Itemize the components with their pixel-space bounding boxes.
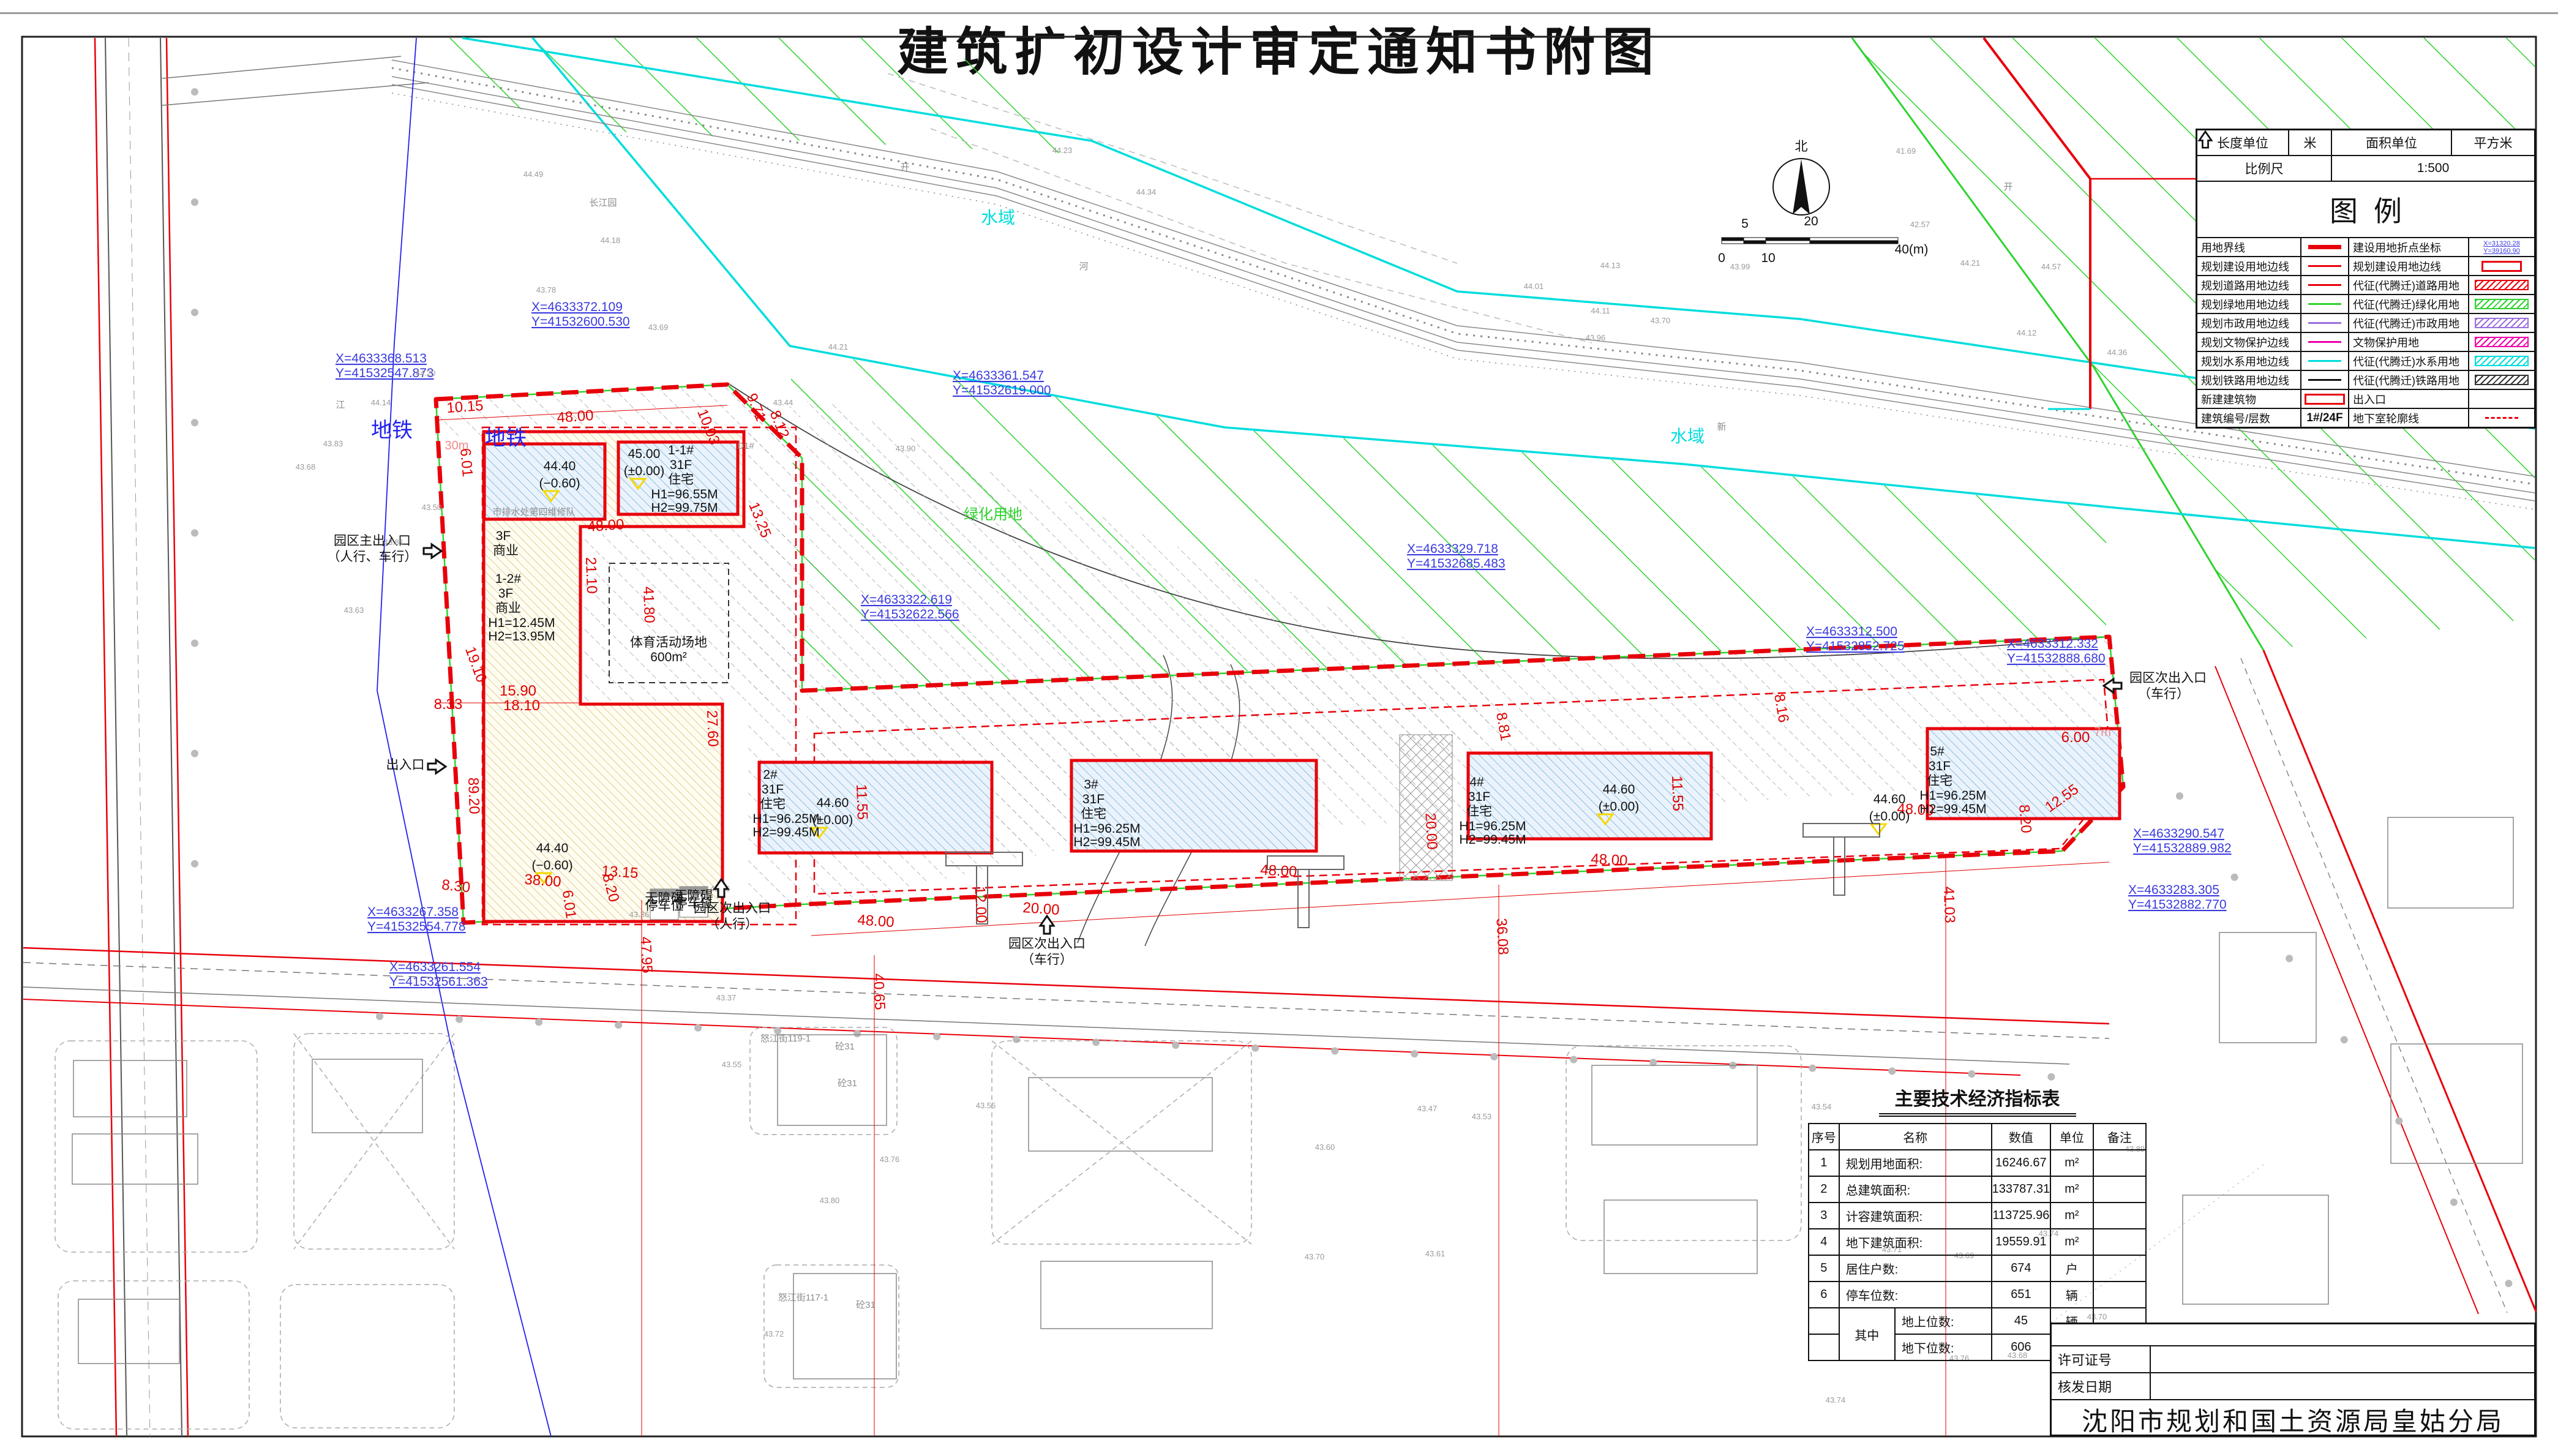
indicators-row: 6停车位数:651辆 [1809,1282,2146,1308]
hatch-green-icon [2475,299,2529,309]
new-building-icon [2305,394,2345,405]
legend-name: 新建建筑物 [2197,390,2301,408]
map-label: 48.00 [1260,861,1297,880]
legend-symbol [2469,257,2534,275]
legend-block: 长度单位 米 面积单位 平方米 比例尺 1:500 图例 用地界线建设用地折点坐… [2196,129,2536,429]
map-label: 10.15 [446,397,484,416]
legend-name: 规划文物保护边线 [2197,333,2301,351]
map-label: 3F [498,587,514,601]
map-label: Y=41532600.530 [531,315,630,329]
map-label: H1=96.55M [651,487,718,501]
legend-symbol [2301,390,2349,408]
map-label: 43.78 [536,285,557,295]
legend-symbol [2301,276,2349,294]
map-label: 89.20 [465,777,482,814]
map-label: 41.80 [640,586,658,623]
map-label: 44.13 [1600,261,1621,270]
legend-symbol [2469,295,2534,313]
map-label: H2=99.45M [752,825,819,839]
legend-symbol: X=31320.28Y=39160.90 [2469,238,2534,256]
legend-symbol [2301,352,2349,370]
issue-date-label: 核发日期 [2052,1373,2151,1399]
map-label: Y=41532619.000 [953,383,1051,397]
group-cell: 其中 [1839,1308,1895,1360]
permit-number-label: 许可证号 [2052,1346,2151,1372]
issue-date-value [2151,1373,2534,1399]
map-label: 长江园 [589,198,617,208]
scale-value: 1:500 [2332,156,2534,181]
map-label: 48.00 [857,912,895,931]
map-label: 43.90 [896,444,916,453]
map-label: X=4633312.332 [2007,637,2098,651]
map-label: 44.34 [1136,187,1157,197]
map-label: 河 [1079,261,1088,272]
map-label: 20.00 [1422,812,1440,850]
parking-ramp [1400,735,1452,880]
title-block: 许可证号 核发日期 沈阳市规划和国土资源局皇姑分局 [2050,1323,2536,1436]
legend-symbol: 1#/24F [2301,409,2349,427]
map-label: 45.00 [628,447,661,461]
map-label: X=4633267.358 [367,905,459,919]
map-label: 园区次出入口 [1008,937,1086,951]
map-label: 40.65 [869,973,888,1010]
map-label: 44.20 [416,369,436,378]
map-label: H2=99.75M [651,501,718,515]
hatch-red-icon [2475,280,2529,290]
hatch-black-icon [2475,375,2529,385]
map-label: 43.80 [820,1196,840,1205]
map-label: 44.60 [1873,792,1906,806]
map-label: 43.76 [880,1155,900,1164]
map-label: 44.23 [1052,146,1073,155]
entrance-arrow-icon [424,544,441,558]
map-label: 怒江街117-1 [778,1293,828,1303]
map-label: 2# [763,768,778,782]
legend-row: 规划铁路用地边线代征(代腾迁)铁路用地 [2197,371,2534,390]
area-unit-value: 平方米 [2452,130,2534,155]
map-label: 11.55 [853,784,871,820]
map-label: 5 [1741,217,1749,231]
map-label: 43.72 [764,1329,784,1338]
indicators-header-row: 序号名称数值单位备注 [1809,1124,2146,1150]
map-label: 42.57 [1910,220,1930,229]
legend-name: 文物保护用地 [2349,333,2469,351]
line-green-icon [2308,303,2341,305]
map-label: 48.00 [1591,850,1628,869]
map-label: 砼31 [856,1300,876,1310]
map-label: Y=41532685.483 [1407,557,1506,571]
legend-name: 规划道路用地边线 [2197,276,2301,294]
map-label: 44.14 [371,398,391,407]
legend-row: 新建建筑物出入口 [2197,390,2534,409]
map-label: 44.40 [536,841,569,855]
legend-name: 规划铁路用地边线 [2197,371,2301,389]
map-label: Y=41532882.770 [2128,898,2227,912]
map-label: 44.21 [1960,258,1981,268]
map-label: 1-2# [495,572,521,586]
indicators-row: 5居住户数:674户 [1809,1255,2146,1282]
indicators-row: 4地下建筑面积:19559.91m² [1809,1229,2146,1255]
legend-name: 代征(代腾迁)铁路用地 [2349,371,2469,389]
map-label: 43.83 [323,439,343,448]
line-purple-icon [2308,322,2341,324]
map-label: 43.99 [1730,262,1750,271]
map-label: 31F [1468,790,1490,804]
map-label: 20 [1804,214,1818,228]
map-label: H2=99.45M [1919,802,1986,816]
map-label: H2=13.95M [488,629,555,644]
map-label: 地铁 [371,419,413,442]
legend-row: 规划水系用地边线代征(代腾迁)水系用地 [2197,352,2534,371]
legend-symbol [2301,333,2349,351]
line-magenta-icon [2308,341,2341,343]
line-red-icon [2308,265,2341,267]
map-label: 43.96 [1586,333,1606,342]
map-label: 43.70 [1305,1252,1325,1261]
map-label: (−0.60) [539,476,580,490]
map-label: 44.21 [828,342,849,351]
indicators-row: 1规划用地面积:16246.67m² [1809,1150,2146,1176]
map-label: H2=99.45M [1073,835,1140,849]
map-label: 44.60 [1603,782,1635,797]
map-label: 开 [900,162,909,173]
map-label: 北 [1795,140,1808,154]
map-label: 40(m) [1895,242,1929,257]
map-label: 43.63 [344,606,364,615]
map-label: 水域 [981,208,1015,227]
legend-name: 建设用地折点坐标 [2349,238,2469,256]
map-label: H1=12.45M [488,616,555,630]
hatch-purple-icon [2475,318,2529,328]
units-row: 长度单位 米 面积单位 平方米 [2197,130,2534,156]
legend-name: 代征(代腾迁)绿化用地 [2349,295,2469,313]
map-label: 商业 [495,601,521,615]
legend-name: 代征(代腾迁)道路用地 [2349,276,2469,294]
legend-name: 规划水系用地边线 [2197,352,2301,370]
map-label: 8.33 [434,696,463,713]
map-label: X=4633361.547 [953,369,1044,383]
entrance-arrow-icon [428,760,446,773]
map-label: 商业 [493,544,519,558]
legend-name: 用地界线 [2197,238,2301,256]
map-label: Y=41532561.363 [389,975,488,989]
map-label: 38.00 [524,871,562,890]
city-block-outlines [55,1027,1801,1429]
map-label: H1=96.25M [1073,822,1140,836]
map-label: 43.44 [773,398,793,407]
map-label: (−0.60) [531,858,572,872]
map-label: （人行） [707,917,758,931]
map-label: 11.55 [1668,775,1686,811]
map-label: 1-1# [668,443,694,457]
legend-name: 规划建设用地边线 [2349,257,2469,275]
legend-symbol [2469,314,2534,332]
hatch-cyan-icon [2475,356,2529,366]
legend-symbol [2469,333,2534,351]
map-label: 3# [1084,778,1098,792]
legend-name: 出入口 [2349,390,2469,408]
map-label: 44.36 [2107,348,2128,357]
map-label: 园区次出入口 [2129,671,2207,685]
map-label: 水域 [1670,427,1705,446]
map-label: 出入口 [386,758,425,772]
map-label: 住宅 [1081,807,1106,821]
length-unit-value: 米 [2289,130,2332,155]
legend-name: 规划绿地用地边线 [2197,295,2301,313]
scale-row: 比例尺 1:500 [2197,156,2534,182]
map-label: Y=41532888.680 [2007,651,2106,666]
scale-bar [1722,238,1898,244]
line-red-icon [2308,284,2341,286]
legend-row: 规划建设用地边线规划建设用地边线 [2197,257,2534,276]
map-label: 市排水处第四维修队 [492,506,575,517]
map-label: 停车位 [675,896,713,910]
west-street [95,38,429,1436]
legend-symbol [2469,371,2534,389]
map-label: (±0.00) [1599,800,1639,814]
map-label: 44.18 [601,236,621,245]
map-label: X=4633322.619 [861,593,952,607]
map-label: 怒江街119-1 [760,1034,811,1044]
map-label: 4# [1469,775,1484,789]
map-label: 住宅 [760,797,786,811]
map-label: （车行） [2138,687,2189,701]
map-label: 砼31 [838,1078,857,1089]
legend-name: 建筑编号/层数 [2197,409,2301,427]
legend-name: 规划建设用地边线 [2197,257,2301,275]
map-label: 43.53 [1472,1112,1492,1121]
map-label: D1# [737,441,754,451]
map-label: 43.74 [1826,1395,1846,1405]
legend-symbol [2301,371,2349,389]
map-label: 3F [496,529,511,543]
map-label: (±0.00) [1869,809,1910,824]
legend-row: 规划绿地用地边线代征(代腾迁)绿化用地 [2197,295,2534,314]
legend-symbol [2301,238,2349,256]
map-label: 44.60 [817,796,849,810]
line-red-dash-icon [2485,417,2518,419]
vertex-coordinate-icon: X=31320.28Y=39160.90 [2483,240,2520,255]
map-label: 21.10 [582,557,600,594]
title-block-empty-row [2052,1324,2534,1346]
map-label: 36.08 [1493,918,1511,955]
line-cyan-icon [2308,360,2341,362]
legend-row: 规划道路用地边线代征(代腾迁)道路用地 [2197,276,2534,295]
legend-symbol [2469,409,2534,427]
map-label: 住宅 [1466,805,1492,819]
map-label: 43.55 [722,1060,742,1069]
map-label: 6.00 [2061,729,2090,746]
map-label: 44.11 [1591,306,1610,315]
new-building-icon [2481,261,2522,272]
legend-name: 地下室轮廓线 [2349,409,2469,427]
map-label: Y=41532889.982 [2133,841,2232,855]
map-label: 12.00 [971,886,989,923]
map-label: 43.61 [1425,1249,1446,1258]
map-label: 27.60 [703,710,721,747]
map-label: 48.00 [557,407,594,426]
map-label: 41.03 [1940,886,1958,923]
map-label: H2=99.45M [1459,833,1526,847]
map-label: Y=41532852.725 [1806,639,1905,653]
map-label: 5# [1930,745,1945,759]
map-label: 43.81 [384,538,404,547]
legend-symbol [2469,390,2534,408]
map-label: X=4633312.500 [1806,625,1897,639]
map-label: 10 [1761,251,1775,265]
line-black-icon [2308,379,2341,381]
map-label: 住宅 [1927,774,1952,788]
drawing-sheet: 建筑扩初设计审定通知书附图 [0,0,2558,1456]
map-label: 43.60 [1315,1143,1335,1152]
map-label: 44.12 [2017,328,2037,337]
indicators-row: 3计容建筑面积:113725.96m² [1809,1203,2146,1229]
map-label: 48.00 [587,516,625,535]
legend-symbol [2469,352,2534,370]
map-label: 开 [2003,182,2012,192]
map-label: H1=96.25M [1919,789,1986,803]
map-label: 43.70 [1651,316,1671,325]
legend-name: 规划市政用地边线 [2197,314,2301,332]
map-label: 31F [762,782,784,797]
indicators-title: 主要技术经济指标表 [1879,1080,2076,1117]
legend-symbol [2301,295,2349,313]
map-label: Y=41532554.778 [367,920,466,934]
map-label: X=4633368.513 [336,351,427,366]
scale-label: 比例尺 [2197,156,2332,181]
map-label: X=4633372.109 [531,300,623,314]
map-label: (±0.00) [624,464,664,478]
map-label: X=4633261.554 [389,960,481,974]
legend-row: 规划文物保护边线文物保护用地 [2197,333,2534,352]
legend-symbol [2301,314,2349,332]
indicators-row: 2总建筑面积:133787.31m² [1809,1176,2146,1203]
permit-number-value [2151,1346,2534,1372]
legend-row: 建筑编号/层数1#/24F地下室轮廓线 [2197,409,2534,427]
floor-count-example: 1#/24F [2306,411,2342,425]
indicators-block: 主要技术经济指标表 序号名称数值单位备注1规划用地面积:16246.67m²2总… [1808,1080,2147,1361]
map-label: 31F [1929,759,1951,773]
legend-symbol [2301,257,2349,275]
legend-row: 规划市政用地边线代征(代腾迁)市政用地 [2197,314,2534,333]
map-label: 地铁 [485,427,527,450]
map-label: X=4633290.547 [2133,827,2224,841]
hatch-magenta-icon [2475,337,2529,347]
map-label: 44.49 [523,170,544,179]
line-thick-red-icon [2308,245,2341,249]
map-label: 8.20 [2016,804,2035,834]
agency-name: 沈阳市规划和国土资源局皇姑分局 [2052,1400,2534,1438]
map-label: 44.40 [544,459,576,473]
area-unit-label: 面积单位 [2332,130,2452,155]
legend-name: 代征(代腾迁)市政用地 [2349,314,2469,332]
entrance-arrow-icon [1040,916,1054,934]
map-label: X=4633283.305 [2128,883,2219,897]
map-label: 43.68 [296,462,316,471]
legend-row: 用地界线建设用地折点坐标X=31320.28Y=39160.90 [2197,238,2534,257]
legend-title: 图例 [2197,182,2534,238]
map-label: 15.90 [500,683,536,699]
map-label: 31F [1082,792,1105,806]
map-label: 31F [670,458,692,472]
map-label: 43.47 [1417,1104,1438,1113]
map-label: (±0.00) [812,813,853,827]
map-label: 43.69 [648,323,669,332]
map-label: 8.30 [441,877,471,896]
map-label: 41.69 [1896,146,1916,156]
map-label: 砼31 [835,1041,855,1052]
map-label: H1=96.25M [1459,819,1526,833]
map-label: （车行） [1021,953,1073,967]
legend-symbol [2469,276,2534,294]
map-label: 新 [1717,422,1726,432]
map-label: 18.10 [503,697,540,714]
map-label: （人行、车行） [328,550,418,564]
map-label: 7m [2094,726,2111,739]
map-label: 30m [445,439,469,452]
legend-rows: 用地界线建设用地折点坐标X=31320.28Y=39160.90规划建设用地边线… [2197,238,2534,427]
map-label: 江 [336,400,345,410]
map-label: 44.57 [2041,262,2061,271]
map-label: 0 [1718,251,1725,265]
map-label: Y=41532622.566 [861,607,959,621]
map-label: 47.95 [637,936,655,974]
map-label: 43.50 [422,503,442,512]
map-label: 44.01 [1524,282,1544,291]
map-label: 600m² [650,650,687,664]
map-label: H1=96.25M [752,812,819,826]
map-label: 住宅 [668,473,694,487]
map-label: 43.37 [716,993,737,1002]
map-label: 绿化用地 [964,506,1022,523]
north-arrow [1773,159,1829,215]
map-label: 20.00 [1022,899,1060,918]
site-plan-svg: X=4633372.109Y=41532600.530X=4633361.547… [0,0,2558,1456]
map-label: X=4633329.718 [1407,542,1498,556]
legend-name: 代征(代腾迁)水系用地 [2349,352,2469,370]
map-label: 体育活动场地 [630,636,707,650]
map-label: 43.55 [976,1101,996,1110]
